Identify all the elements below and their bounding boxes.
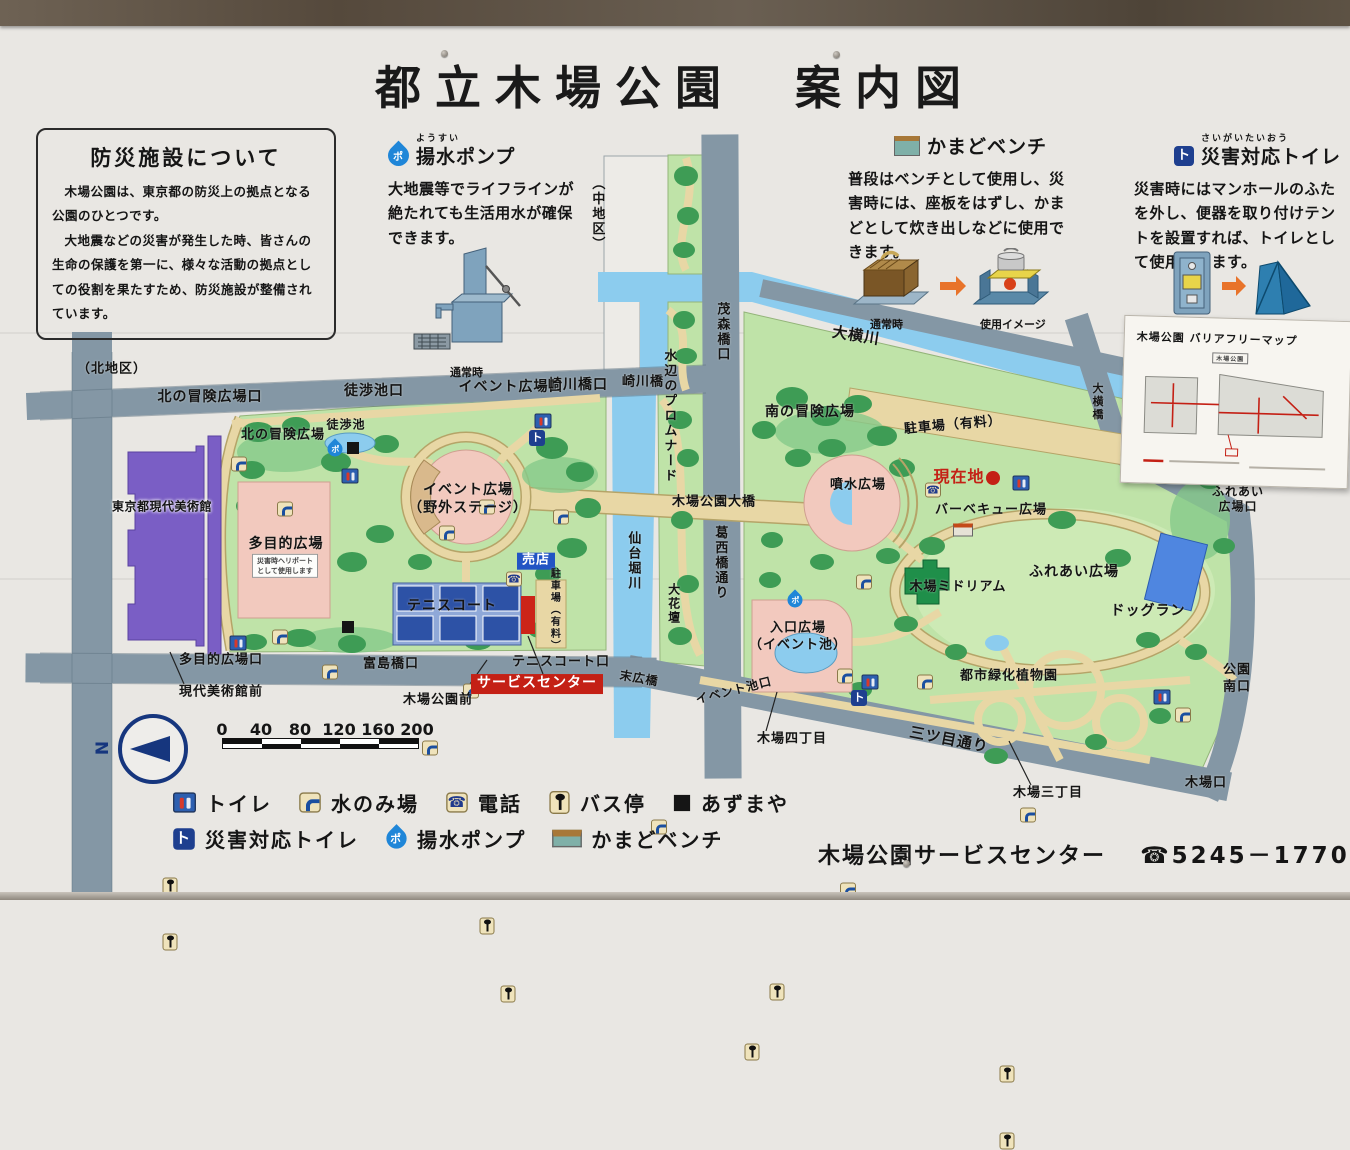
event-plaza: [419, 450, 513, 544]
kamado-bench-icon: [894, 136, 920, 156]
pump-icon: ポ: [384, 141, 414, 171]
museum-building: [128, 446, 204, 646]
kamado-illustration: [852, 248, 1062, 314]
toilet-icon: [173, 792, 196, 812]
page-title: 都立木場公園 案内図: [0, 52, 1350, 118]
kamado-bench-icon: [553, 830, 583, 848]
info-box-title: 防災施設について: [52, 142, 320, 172]
scale-bar: 04080120160200: [222, 720, 422, 749]
legend-azumaya: あずまや: [672, 788, 789, 817]
scale-tick: 0: [216, 720, 227, 739]
bus-stop-icon: [745, 1044, 760, 1061]
botanical-pond: [985, 635, 1009, 651]
pump-caption-normal: 通常時: [450, 364, 483, 380]
azumaya-icon: [674, 794, 690, 810]
disaster-toilet-section: ト さいがいたいおう 災害対応トイレ 災害時にはマンホールのふたを外し、便器を取…: [1134, 142, 1348, 274]
bus-stop-icon: [1000, 1066, 1015, 1083]
footer: 木場公園サービスセンター ☎5245－1770: [818, 836, 1350, 870]
pump-section-title: ポ ようすい 揚水ポンプ: [388, 142, 588, 169]
legend-pump: ポ 揚水ポンプ: [385, 824, 526, 853]
legend-disaster-toilet: ト 災害対応トイレ: [172, 824, 359, 853]
bus-stop-icon: [1000, 1133, 1015, 1150]
bus-stop-icon: [480, 918, 495, 935]
parking-lot: [536, 580, 566, 648]
water-fountain-icon: [299, 792, 321, 812]
service-center-building: [521, 596, 535, 634]
kamado-section: かまどベンチ 普段はベンチとして使用し、災害時には、座板をはずし、かまどとして炊…: [848, 132, 1066, 264]
pump-ruby: ようすい: [416, 131, 460, 144]
wood-frame-bottom: [0, 892, 1350, 900]
scale-ticks: 04080120160200: [222, 720, 422, 738]
service-center-name: 木場公園サービスセンター: [818, 838, 1106, 870]
legend-kamado-bench: かまどベンチ: [552, 824, 723, 853]
compass-needle: [130, 736, 170, 762]
legend-row-2: ト 災害対応トイレ ポ 揚水ポンプ かまどベンチ: [172, 824, 723, 853]
wading-pond: [325, 433, 375, 453]
wood-frame-top: [0, 0, 1350, 26]
inset-map-drawing: [1129, 358, 1342, 476]
pump-section: ポ ようすい 揚水ポンプ 大地震等でライフラインが絶たれても生活用水が確保できま…: [388, 142, 588, 250]
bus-stop-icon: [501, 986, 516, 1003]
disaster-toilet-icon: ト: [1174, 146, 1194, 166]
scale-tick: 80: [289, 720, 311, 739]
scale-tick: 40: [250, 720, 272, 739]
compass-circle: [118, 714, 188, 784]
info-box-paragraph: 大地震などの災害が発生した時、皆さんの生命の保護を第一に、様々な活動の拠点として…: [52, 229, 320, 327]
kamado-section-title: かまどベンチ: [848, 132, 1066, 159]
service-center-phone: ☎5245－1770: [1140, 836, 1350, 870]
info-box-paragraph: 木場公園は、東京都の防災上の拠点となる公園のひとつです。: [52, 180, 320, 229]
pump-icon: ポ: [382, 824, 411, 853]
multipurpose-plaza: [238, 482, 330, 618]
scale-bar-graphic: [222, 738, 419, 749]
compass: N: [118, 714, 188, 784]
inset-park-label: 木場公園: [1212, 352, 1248, 364]
disaster-info-box: 防災施設について 木場公園は、東京都の防災上の拠点となる公園のひとつです。 大地…: [36, 128, 336, 340]
scale-tick: 160: [361, 720, 394, 739]
screw: [441, 50, 448, 57]
disaster-toilet-section-title: ト さいがいたいおう 災害対応トイレ: [1134, 142, 1348, 169]
legend-toilet: トイレ: [172, 788, 272, 817]
museum-building: [208, 436, 221, 654]
legend-phone: ☎ 電話: [445, 788, 522, 817]
legend-water-fountain: 水のみ場: [298, 788, 419, 817]
pump-illustration: [406, 244, 546, 356]
bus-stop-icon: [163, 934, 178, 951]
legend-bus-stop: バス停: [548, 788, 646, 817]
pump-description: 大地震等でライフラインが絶たれても生活用水が確保できます。: [388, 177, 588, 250]
scale-tick: 200: [400, 720, 433, 739]
scale-tick: 120: [322, 720, 355, 739]
disaster-toilet-illustration: [1160, 250, 1320, 320]
bus-stop-icon: [549, 791, 569, 814]
disaster-toilet-icon: ト: [173, 828, 195, 850]
inset-title: 木場公園 バリアフリーマップ: [1137, 328, 1350, 350]
bus-stop-icon: [770, 984, 785, 1001]
screw: [833, 51, 840, 58]
disaster-toilet-ruby: さいがいたいおう: [1201, 131, 1289, 144]
kamado-caption-normal: 通常時: [870, 316, 903, 332]
phone-icon: ☎: [446, 792, 468, 812]
legend-row-1: トイレ 水のみ場 ☎ 電話 バス停 あずまや: [172, 788, 789, 817]
compass-north-label: N: [93, 741, 113, 755]
screw: [903, 860, 910, 867]
kamado-caption-use: 使用イメージ: [980, 316, 1046, 332]
barrier-free-map-inset: 木場公園 バリアフリーマップ 木場公園: [1120, 315, 1350, 489]
event-pond: [775, 633, 837, 673]
